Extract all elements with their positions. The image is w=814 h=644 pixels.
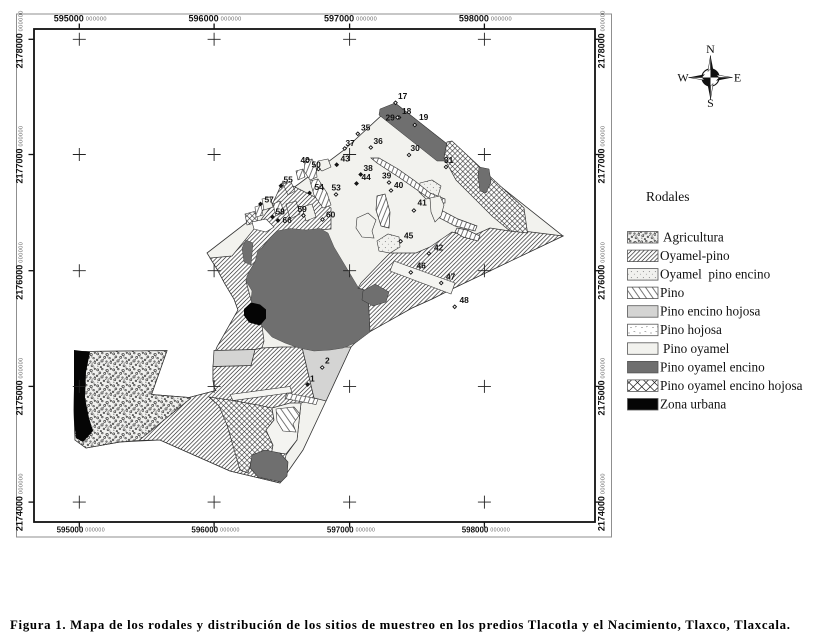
svg-text:595000: 595000 (54, 14, 84, 24)
svg-text:42: 42 (434, 243, 444, 253)
svg-text:37: 37 (346, 138, 356, 148)
svg-text:Pino hojosa: Pino hojosa (660, 322, 722, 337)
svg-text:45: 45 (404, 231, 414, 241)
svg-text:Oyamel-pino: Oyamel-pino (660, 248, 730, 263)
svg-text:54: 54 (315, 182, 325, 192)
svg-text:35: 35 (361, 123, 371, 133)
svg-text:17: 17 (398, 91, 408, 101)
svg-text:S: S (707, 96, 714, 110)
svg-text:Rodales: Rodales (646, 189, 690, 204)
svg-text:36: 36 (374, 136, 384, 146)
svg-text:Oyamel pino encino: Oyamel pino encino (660, 267, 771, 282)
svg-text:000000: 000000 (220, 528, 240, 534)
svg-text:000000: 000000 (491, 17, 512, 23)
svg-text:30: 30 (411, 143, 421, 153)
svg-text:596000: 596000 (191, 526, 218, 535)
svg-text:Zona urbana: Zona urbana (660, 397, 726, 412)
svg-text:595000: 595000 (57, 526, 84, 535)
svg-text:39: 39 (382, 171, 392, 181)
svg-text:Pino encino hojosa: Pino encino hojosa (660, 304, 761, 319)
svg-text:W: W (677, 71, 689, 85)
svg-text:596000: 596000 (189, 14, 219, 24)
svg-text:41: 41 (418, 198, 428, 208)
svg-text:47: 47 (446, 272, 456, 282)
svg-text:55: 55 (284, 174, 294, 184)
svg-text:Pino oyamel: Pino oyamel (663, 341, 730, 356)
svg-text:59: 59 (298, 204, 308, 214)
svg-text:19: 19 (419, 112, 429, 122)
svg-text:000000: 000000 (490, 528, 510, 534)
svg-text:598000: 598000 (459, 14, 489, 24)
svg-text:Pino oyamel encino hojosa: Pino oyamel encino hojosa (660, 378, 803, 393)
svg-text:N: N (706, 42, 715, 56)
svg-text:597000: 597000 (327, 526, 354, 535)
svg-text:000000: 000000 (356, 528, 376, 534)
svg-text:Agricultura: Agricultura (663, 230, 724, 245)
svg-text:46: 46 (417, 261, 427, 271)
svg-text:43: 43 (341, 154, 351, 164)
svg-text:29: 29 (386, 113, 396, 123)
svg-text:60: 60 (326, 210, 336, 220)
svg-text:40: 40 (394, 180, 404, 190)
svg-text:000000: 000000 (221, 17, 242, 23)
svg-text:18: 18 (402, 106, 412, 116)
svg-text:000000: 000000 (85, 528, 105, 534)
svg-text:48: 48 (460, 295, 470, 305)
svg-text:000000: 000000 (356, 17, 377, 23)
svg-text:2: 2 (325, 356, 330, 366)
svg-text:44: 44 (362, 172, 372, 182)
svg-text:66: 66 (283, 215, 293, 225)
svg-text:598000: 598000 (462, 526, 489, 535)
svg-text:Pino: Pino (660, 285, 685, 300)
svg-text:E: E (734, 71, 741, 85)
svg-text:53: 53 (332, 183, 342, 193)
svg-text:597000: 597000 (324, 14, 354, 24)
svg-text:000000: 000000 (86, 17, 107, 23)
svg-text:1: 1 (310, 374, 315, 384)
svg-text:57: 57 (265, 194, 275, 204)
svg-text:31: 31 (444, 155, 454, 165)
svg-text:Figura 1. Mapa de los rodales: Figura 1. Mapa de los rodales y distribu… (10, 618, 790, 632)
svg-text:Pino oyamel encino: Pino oyamel encino (660, 359, 765, 374)
